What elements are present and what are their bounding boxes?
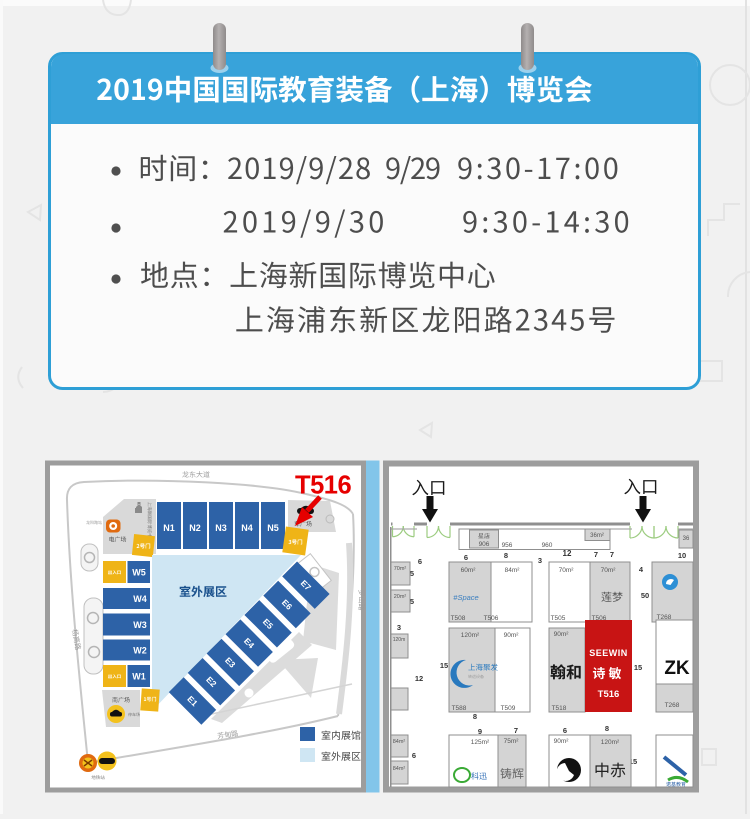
svg-text:W4: W4	[133, 594, 147, 604]
svg-text:N5: N5	[267, 523, 279, 533]
svg-text:8: 8	[605, 724, 609, 733]
svg-text:6: 6	[412, 751, 416, 760]
svg-text:W1: W1	[132, 672, 146, 682]
svg-text:5: 5	[410, 597, 414, 606]
svg-text:70m²: 70m²	[601, 567, 617, 574]
svg-text:20m²: 20m²	[394, 594, 407, 600]
svg-text:120m: 120m	[393, 637, 406, 643]
svg-text:6: 6	[418, 557, 422, 566]
svg-text:W3: W3	[133, 620, 147, 630]
svg-text:84m²: 84m²	[505, 567, 521, 574]
svg-text:T508: T508	[451, 615, 466, 622]
svg-text:120m²: 120m²	[601, 739, 620, 746]
svg-text:6: 6	[563, 726, 567, 735]
svg-text:7: 7	[610, 550, 614, 559]
svg-text:36: 36	[683, 536, 690, 542]
svg-text:N4: N4	[241, 523, 253, 533]
svg-text:T588: T588	[452, 705, 467, 712]
svg-text:70m²: 70m²	[559, 567, 575, 574]
svg-text:956: 956	[502, 542, 513, 549]
svg-text:3: 3	[397, 623, 401, 632]
svg-text:SEEWIN: SEEWIN	[589, 648, 628, 658]
svg-text:T516: T516	[295, 472, 351, 500]
svg-text:6: 6	[464, 553, 468, 562]
svg-text:W5: W5	[132, 568, 146, 578]
svg-text:960: 960	[542, 542, 553, 549]
svg-text:#Space: #Space	[453, 593, 478, 602]
svg-text:N2: N2	[189, 523, 201, 533]
svg-text:N1: N1	[163, 523, 175, 533]
svg-text:12: 12	[415, 674, 423, 683]
svg-text:7: 7	[594, 550, 598, 559]
svg-text:15: 15	[440, 661, 448, 670]
svg-text:75m²: 75m²	[504, 738, 520, 745]
svg-text:W2: W2	[133, 646, 147, 656]
svg-text:906: 906	[479, 541, 490, 548]
svg-text:70m²: 70m²	[394, 566, 407, 572]
svg-text:84m²: 84m²	[393, 739, 406, 745]
svg-text:7: 7	[514, 726, 518, 735]
svg-text:5: 5	[410, 569, 414, 578]
svg-text:90m²: 90m²	[554, 631, 570, 638]
svg-text:125m²: 125m²	[471, 739, 490, 746]
svg-text:50: 50	[641, 591, 649, 600]
svg-text:T268: T268	[665, 702, 680, 709]
svg-text:120m²: 120m²	[461, 632, 480, 639]
svg-text:90m²: 90m²	[504, 632, 520, 639]
svg-text:60m²: 60m²	[461, 567, 477, 574]
svg-text:8: 8	[504, 551, 508, 560]
svg-text:T505: T505	[551, 615, 566, 622]
svg-text:36m²: 36m²	[590, 533, 604, 539]
svg-text:T506: T506	[484, 615, 499, 622]
svg-text:10: 10	[678, 551, 686, 560]
svg-text:8: 8	[473, 712, 477, 721]
svg-text:N3: N3	[215, 523, 227, 533]
svg-text:15: 15	[634, 663, 642, 672]
svg-text:T516: T516	[598, 689, 620, 700]
svg-text:84m²: 84m²	[393, 766, 406, 772]
svg-text:T518: T518	[552, 705, 567, 712]
svg-text:T509: T509	[501, 705, 516, 712]
svg-text:3: 3	[538, 556, 542, 565]
svg-text:90m²: 90m²	[554, 738, 570, 745]
svg-text:12: 12	[563, 549, 572, 558]
svg-text:ZK: ZK	[664, 658, 690, 679]
